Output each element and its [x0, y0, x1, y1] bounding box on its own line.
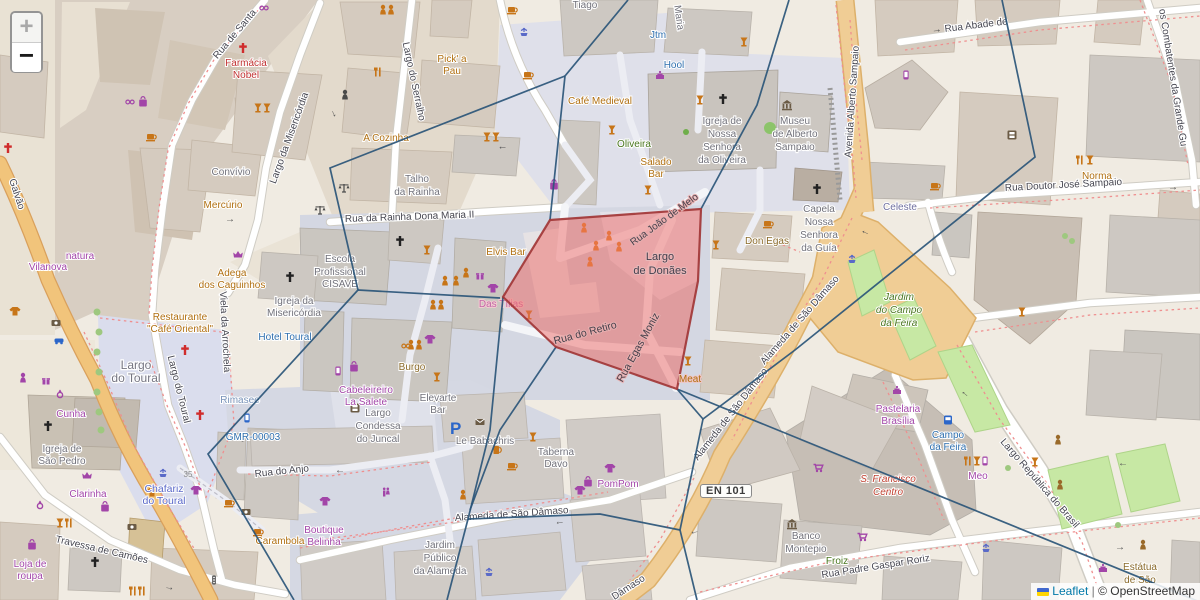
svg-text:Pau: Pau	[443, 66, 461, 77]
svg-text:Misericórdia: Misericórdia	[267, 308, 321, 319]
svg-text:Cabeleireiro: Cabeleireiro	[339, 385, 393, 396]
svg-text:dos Caguinhos: dos Caguinhos	[199, 280, 266, 291]
svg-text:do Campo: do Campo	[876, 305, 923, 316]
svg-text:Boutique: Boutique	[304, 525, 344, 536]
svg-text:PomPom: PomPom	[597, 479, 638, 490]
svg-text:Mercúrio: Mercúrio	[204, 200, 243, 211]
svg-text:→: →	[931, 24, 942, 36]
svg-text:da Feira: da Feira	[930, 442, 967, 453]
svg-text:←: ←	[1118, 458, 1128, 469]
svg-text:da Oliveira: da Oliveira	[698, 155, 746, 166]
svg-text:Pick' a: Pick' a	[437, 54, 467, 65]
svg-text:de Donães: de Donães	[633, 265, 687, 277]
svg-text:Capela: Capela	[803, 204, 835, 215]
svg-text:Restaurante: Restaurante	[153, 312, 208, 323]
svg-text:Celeste: Celeste	[883, 202, 917, 213]
svg-text:da Feira: da Feira	[881, 318, 918, 329]
svg-text:Chafariz: Chafariz	[144, 483, 183, 495]
svg-text:Taberna: Taberna	[538, 447, 575, 458]
svg-text:roupa: roupa	[17, 571, 43, 582]
svg-text:Tiago: Tiago	[573, 0, 598, 11]
svg-text:Adega: Adega	[218, 268, 247, 279]
svg-text:Vilanova: Vilanova	[29, 262, 68, 273]
svg-text:Belinha: Belinha	[307, 537, 341, 548]
svg-text:Salado: Salado	[640, 157, 672, 168]
svg-text:Sampaio: Sampaio	[775, 142, 815, 153]
svg-text:Nossa: Nossa	[708, 129, 737, 140]
svg-text:Clarinha: Clarinha	[69, 489, 107, 500]
svg-text:da Alameda: da Alameda	[414, 566, 467, 577]
svg-text:Meo: Meo	[968, 471, 988, 482]
svg-text:Farmácia: Farmácia	[225, 58, 267, 69]
svg-text:Público: Público	[424, 553, 457, 564]
svg-text:da Rainha: da Rainha	[394, 187, 440, 198]
svg-text:Igreja de: Igreja de	[43, 444, 82, 455]
svg-text:Nobel: Nobel	[233, 70, 259, 81]
svg-text:Igreja da: Igreja da	[275, 296, 314, 307]
svg-text:Norma: Norma	[1082, 171, 1112, 182]
svg-text:Meat: Meat	[679, 374, 701, 385]
svg-text:natura: natura	[66, 251, 95, 262]
svg-text:Convívio: Convívio	[212, 167, 251, 178]
svg-text:Cunha: Cunha	[56, 409, 86, 420]
svg-text:Campo: Campo	[932, 430, 965, 441]
svg-text:Jtm: Jtm	[650, 30, 666, 41]
svg-text:Café Medieval: Café Medieval	[568, 96, 632, 107]
svg-text:São Pedro: São Pedro	[38, 456, 86, 467]
svg-text:Hotel Toural: Hotel Toural	[258, 332, 311, 343]
svg-text:Bar: Bar	[430, 405, 446, 416]
svg-text:do Juncal: do Juncal	[357, 434, 400, 445]
svg-text:→: →	[163, 581, 175, 594]
svg-text:Don Egas: Don Egas	[745, 236, 789, 247]
svg-text:Jardim: Jardim	[425, 540, 455, 551]
svg-text:Banco: Banco	[792, 531, 821, 542]
svg-text:Largo: Largo	[121, 358, 152, 372]
svg-text:do Toural: do Toural	[142, 495, 185, 507]
svg-text:→: →	[1115, 542, 1125, 553]
svg-text:Le Babachris: Le Babachris	[456, 436, 514, 447]
svg-text:→: →	[225, 214, 235, 225]
svg-text:Igreja de: Igreja de	[703, 116, 742, 127]
svg-text:"Café Oriental": "Café Oriental"	[147, 324, 213, 335]
svg-text:←: ←	[335, 465, 345, 476]
svg-text:de Alberto: de Alberto	[772, 129, 817, 140]
svg-text:Condessa: Condessa	[355, 421, 400, 432]
svg-text:Bar: Bar	[648, 169, 664, 180]
svg-text:←: ←	[554, 516, 565, 528]
svg-text:da Guía: da Guía	[801, 243, 837, 254]
svg-text:Brasília: Brasília	[881, 416, 915, 427]
svg-text:Museu: Museu	[780, 116, 810, 127]
svg-text:Talho: Talho	[405, 174, 429, 185]
svg-text:Davo: Davo	[544, 459, 568, 470]
svg-text:Nossa: Nossa	[805, 217, 834, 228]
svg-text:do Toural: do Toural	[111, 371, 160, 385]
svg-text:Largo: Largo	[646, 251, 674, 263]
svg-text:Elevarte: Elevarte	[420, 393, 457, 404]
svg-text:Largo: Largo	[365, 408, 391, 419]
svg-text:35: 35	[184, 470, 193, 479]
svg-text:Jardim: Jardim	[883, 292, 914, 303]
svg-text:Loja de: Loja de	[14, 559, 47, 570]
svg-text:Burgo: Burgo	[399, 362, 426, 373]
svg-text:Hool: Hool	[664, 60, 685, 71]
svg-text:CISAVE: CISAVE	[322, 279, 358, 290]
svg-text:Froiz: Froiz	[826, 556, 848, 567]
svg-text:Estátua: Estátua	[1123, 562, 1157, 573]
svg-text:Senhora: Senhora	[800, 230, 838, 241]
svg-text:Pastelaria: Pastelaria	[876, 404, 921, 415]
svg-text:Elvis Bar: Elvis Bar	[486, 247, 526, 258]
svg-text:A Cozinha: A Cozinha	[363, 133, 409, 144]
svg-text:→: →	[1168, 182, 1178, 193]
svg-text:Profissional: Profissional	[314, 267, 366, 278]
svg-text:↓: ↓	[497, 145, 508, 150]
svg-text:Carambola: Carambola	[256, 536, 305, 547]
svg-text:La Salete: La Salete	[345, 397, 388, 408]
svg-text:GMR-00003: GMR-00003	[226, 432, 281, 443]
svg-text:Centro: Centro	[873, 487, 903, 498]
svg-text:Oliveira: Oliveira	[617, 139, 651, 150]
svg-text:Montepio: Montepio	[785, 544, 827, 555]
